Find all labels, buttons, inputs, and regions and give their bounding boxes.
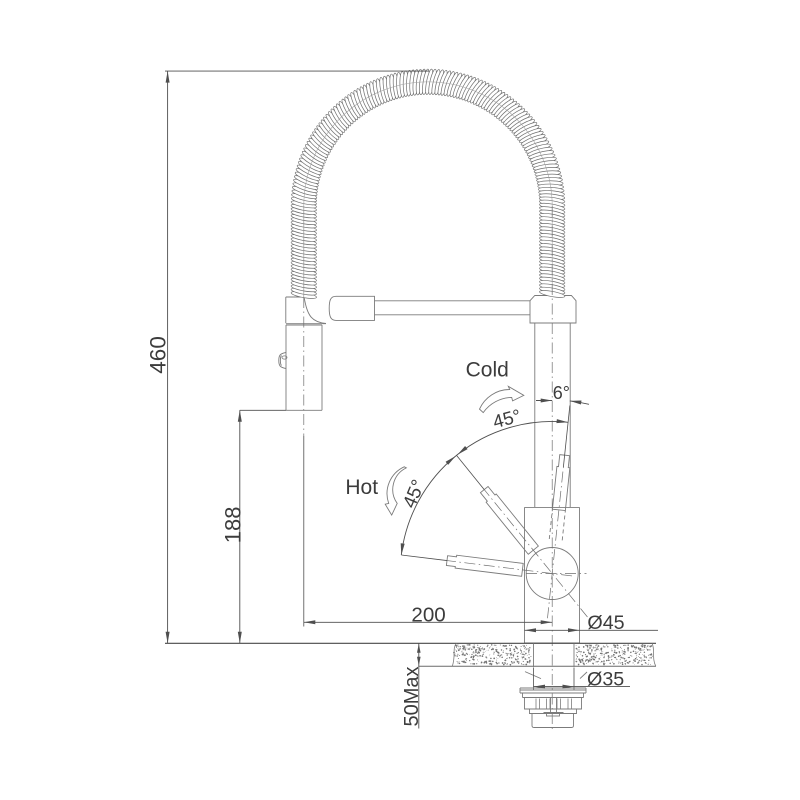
svg-text:Ø45: Ø45	[587, 612, 624, 634]
svg-text:188: 188	[220, 506, 245, 543]
svg-text:Cold: Cold	[466, 358, 509, 381]
svg-text:50Max: 50Max	[401, 666, 423, 726]
svg-text:460: 460	[146, 336, 171, 374]
svg-text:Hot: Hot	[345, 476, 378, 499]
svg-text:Ø35: Ø35	[587, 668, 624, 690]
svg-text:200: 200	[411, 604, 445, 627]
svg-text:6°: 6°	[553, 383, 570, 403]
